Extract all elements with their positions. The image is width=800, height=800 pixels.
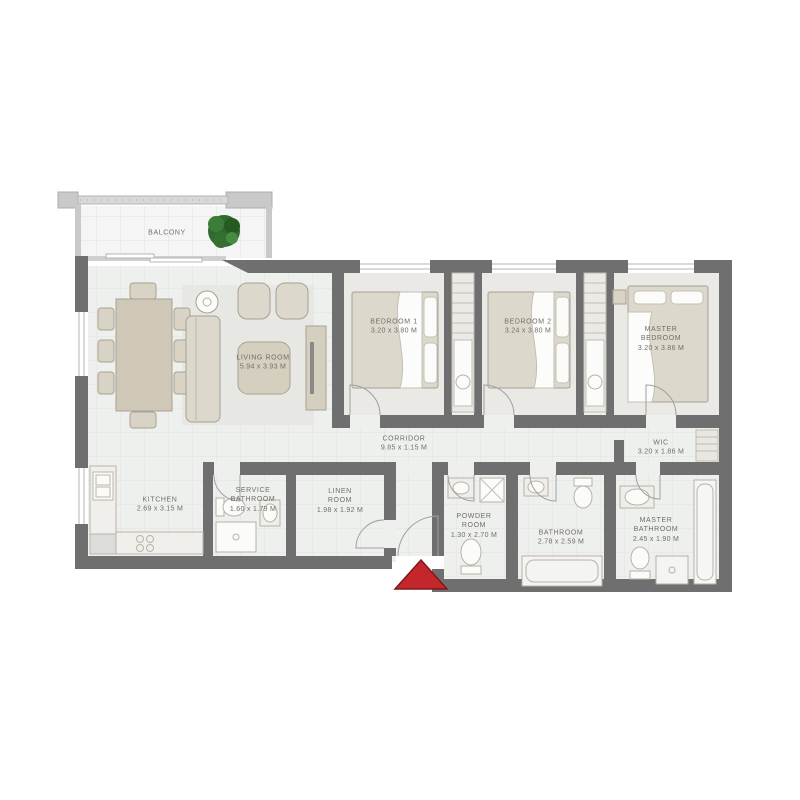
wall-closet1-left	[444, 270, 452, 415]
gap-powder-door	[448, 462, 474, 475]
pillow	[634, 291, 666, 304]
dining-chair	[98, 372, 114, 394]
gap-master-door	[646, 415, 676, 428]
gap-service-bath-door	[214, 462, 240, 475]
wall-powder-right	[506, 468, 518, 592]
fridge	[90, 534, 116, 554]
tv-console	[306, 326, 326, 410]
armchair	[238, 283, 270, 319]
bedroom1-furniture	[352, 292, 438, 388]
balcony-wall-left	[75, 204, 81, 258]
gap-corridor-entry	[396, 462, 432, 475]
pillow	[671, 291, 703, 304]
gap-master-bath-door	[636, 462, 660, 475]
kitchen-counter-bottom	[116, 532, 203, 554]
balcony-wall-right	[266, 206, 272, 258]
dining-chair	[98, 340, 114, 362]
pillow	[424, 297, 437, 337]
gap-linen-door	[384, 520, 396, 548]
toilet	[574, 486, 592, 508]
toilet-tank	[461, 566, 481, 574]
gap-bedroom2-door	[484, 415, 514, 428]
pillow	[556, 297, 569, 337]
gap-bedroom1-door	[350, 415, 380, 428]
wall-closet1-right	[474, 270, 482, 415]
floor-plan-drawing	[0, 0, 800, 800]
wall-bottom-left	[75, 556, 392, 569]
window-master-bedroom	[628, 260, 694, 273]
dining-chair	[130, 412, 156, 428]
closet-bedroom1	[452, 273, 474, 412]
nightstand	[613, 290, 626, 304]
toilet-tank	[630, 571, 650, 579]
toilet-tank	[574, 478, 592, 486]
sofa	[186, 316, 220, 422]
dining-chair	[130, 283, 156, 299]
floor-plan-page: BALCONY LIVING ROOM 5.94 x 3.93 M BEDROO…	[0, 0, 800, 800]
toilet	[461, 539, 481, 565]
wall-service-bath-left	[203, 462, 213, 556]
balcony-floor-grid	[78, 206, 272, 258]
tv-icon	[310, 342, 314, 394]
shower-tray	[656, 556, 688, 584]
side-table-lamp	[196, 291, 218, 313]
balcony-rail	[78, 196, 228, 204]
coffee-table	[238, 342, 290, 394]
window-living-left	[75, 312, 88, 376]
balcony-slider-door-2	[150, 258, 202, 262]
wall-service-bath-right	[286, 462, 296, 556]
window-bedroom2	[492, 260, 556, 273]
washbasin	[625, 489, 649, 505]
closet-bedroom2	[584, 273, 606, 412]
dining-chair	[98, 308, 114, 330]
shower-tray	[216, 522, 256, 552]
pillow	[424, 343, 437, 383]
wardrobe-wic	[696, 430, 718, 461]
dining-table	[116, 299, 172, 411]
washbasin	[263, 504, 277, 522]
wall-wic-stub	[614, 440, 624, 462]
balcony-rail-block-right	[226, 192, 272, 208]
window-kitchen-left	[75, 468, 88, 524]
pillow	[556, 343, 569, 383]
armchair	[276, 283, 308, 319]
window-bedroom1	[360, 260, 430, 273]
balcony-slider-door-1	[106, 254, 154, 258]
toilet	[631, 547, 649, 569]
bedroom2-furniture	[488, 292, 570, 388]
washbasin	[453, 482, 469, 494]
wall-bathroom-right	[604, 468, 616, 592]
gap-bathroom-door	[530, 462, 556, 475]
wall-living-bedroom1	[332, 270, 344, 415]
wall-closet2-left	[576, 270, 584, 415]
